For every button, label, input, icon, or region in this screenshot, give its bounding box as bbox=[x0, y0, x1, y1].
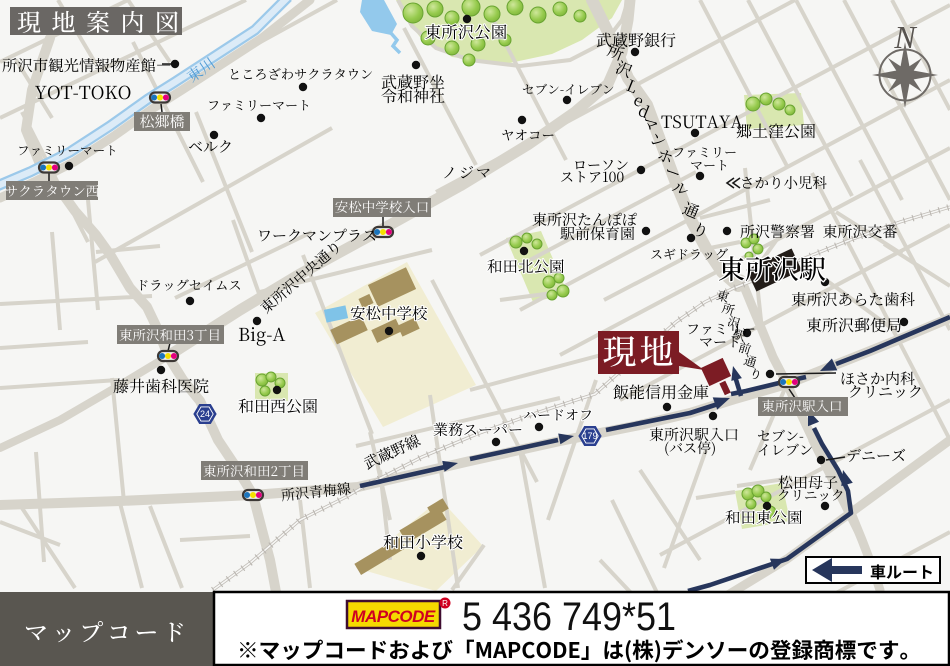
svg-text:5 436 749*51: 5 436 749*51 bbox=[462, 595, 676, 639]
svg-text:MAPCODE: MAPCODE bbox=[351, 607, 436, 626]
svg-text:179: 179 bbox=[582, 431, 597, 441]
svg-text:24: 24 bbox=[200, 409, 210, 419]
svg-text:N: N bbox=[893, 19, 917, 55]
svg-text:R: R bbox=[442, 599, 448, 608]
